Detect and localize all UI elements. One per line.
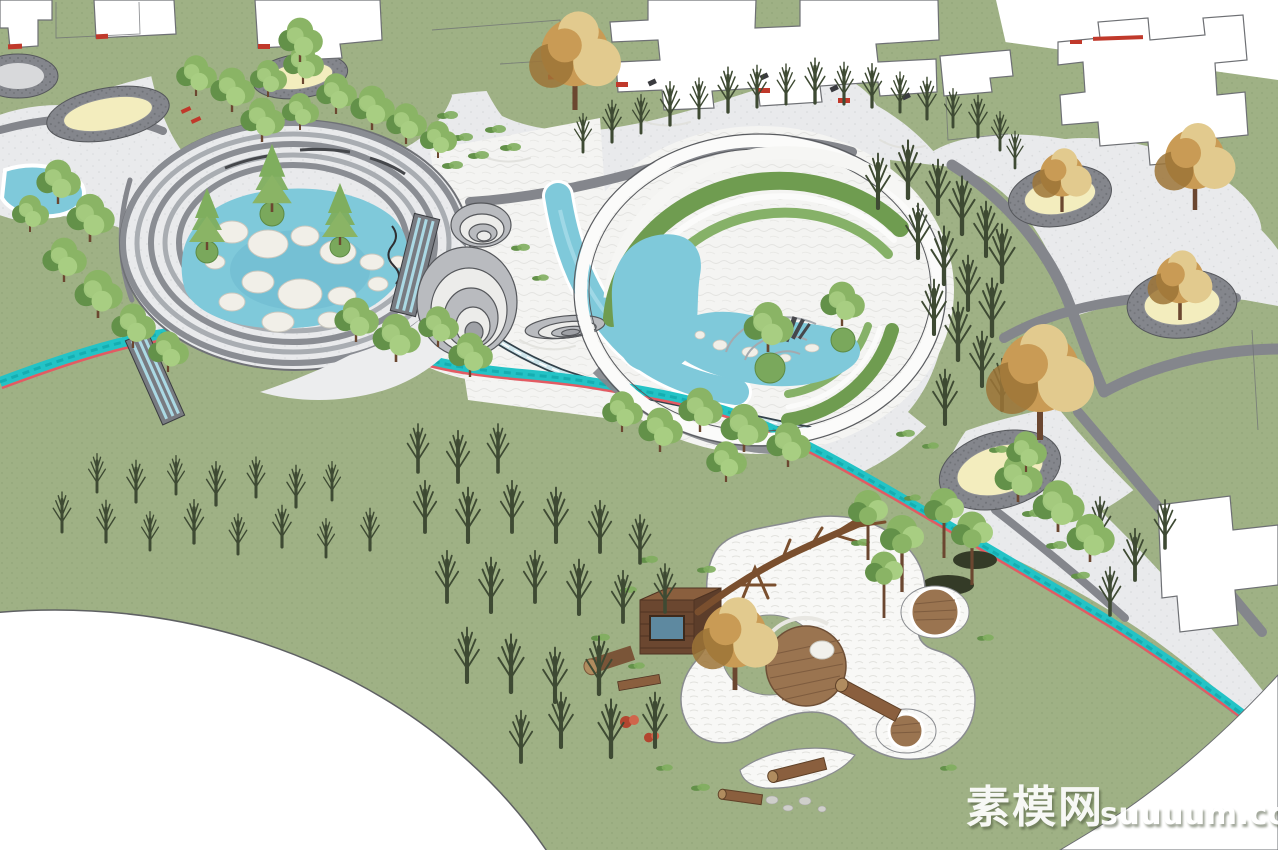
watermark-latin: suuuum.com: [1100, 797, 1278, 832]
watermark-cjk: 素模网: [966, 782, 1104, 833]
park-aerial-render: 素模网 suuuum.com: [0, 0, 1278, 850]
